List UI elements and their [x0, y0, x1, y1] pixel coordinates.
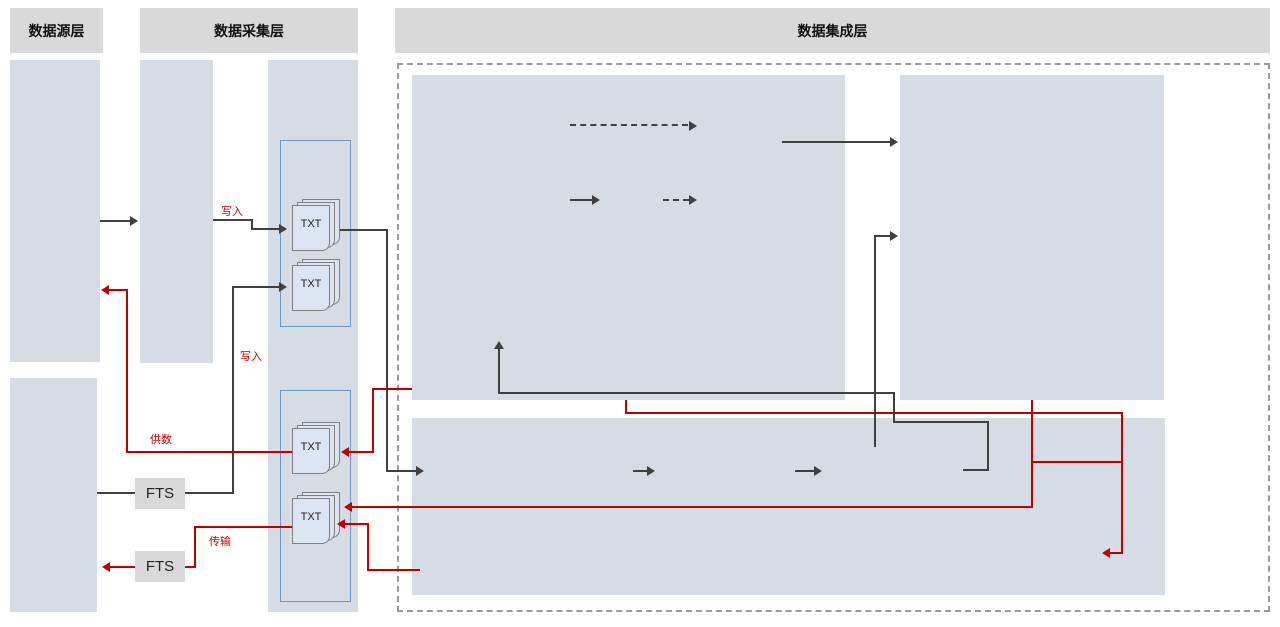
txt-file-stack-receive-2: TXT — [292, 259, 340, 313]
arrow-right-icon — [647, 466, 655, 476]
flow-line-red — [1121, 412, 1123, 554]
flow-line-red — [109, 289, 128, 291]
txt-file-stack-send-2: TXT — [292, 492, 340, 546]
flow-line-red — [348, 451, 374, 453]
flow-line — [251, 228, 280, 230]
arrow-left-icon — [341, 447, 349, 457]
arrow-right-icon — [279, 224, 287, 234]
arrow-right-icon — [416, 466, 424, 476]
flow-line-red — [194, 526, 196, 568]
flow-line-dashed — [570, 124, 688, 126]
flow-line — [232, 286, 280, 288]
flow-line — [499, 392, 895, 394]
flow-line — [100, 220, 132, 222]
arrow-right-icon — [689, 121, 697, 131]
panel-data-marts — [900, 75, 1164, 400]
txt-file-stack-send-1: TXT — [292, 422, 340, 476]
flow-line-red — [373, 388, 412, 390]
arrow-right-icon — [592, 195, 600, 205]
flow-line — [874, 235, 891, 237]
flow-line-red — [1110, 552, 1123, 554]
flow-line — [336, 229, 388, 231]
header-data-integration-layer: 数据集成层 — [395, 8, 1270, 53]
flow-line — [386, 229, 388, 472]
header-data-source-layer: 数据源层 — [10, 8, 103, 53]
flow-line — [498, 348, 500, 394]
flow-line — [795, 470, 815, 472]
arrow-left-icon — [102, 562, 110, 572]
flow-line — [893, 392, 895, 423]
flow-line — [213, 219, 253, 221]
arrow-left-icon — [344, 502, 352, 512]
arrow-right-icon — [890, 231, 898, 241]
flow-label-write-top: 写入 — [221, 203, 243, 219]
flow-line — [874, 235, 876, 447]
panel-unified-collection — [140, 60, 213, 363]
panel-self-built-sources — [10, 60, 100, 362]
flow-line-red — [344, 523, 369, 525]
flow-line-red — [367, 523, 369, 571]
flow-label-supply: 供数 — [150, 431, 172, 447]
flow-line — [893, 421, 989, 423]
flow-line-red — [127, 451, 293, 453]
flow-line-red — [1031, 400, 1033, 508]
flow-line — [633, 470, 648, 472]
arrow-up-icon — [494, 341, 504, 349]
flow-line-red — [126, 290, 128, 453]
flow-line — [782, 141, 891, 143]
arrow-right-icon — [814, 466, 822, 476]
flow-line-red — [625, 412, 1123, 414]
flow-line-dashed — [663, 199, 689, 201]
diagram-canvas: 数据源层 数据采集层 数据集成层 自建数据源 信贷 特色 其他 统建数据源 CB… — [0, 0, 1280, 627]
fts-box-top: FTS — [135, 478, 185, 509]
flow-label-write-mid: 写入 — [240, 348, 262, 364]
arrow-right-icon — [130, 216, 138, 226]
flow-line — [232, 287, 234, 494]
arrow-left-icon — [1102, 548, 1110, 558]
arrow-right-icon — [890, 137, 898, 147]
fts-box-bottom: FTS — [135, 551, 185, 582]
flow-line — [185, 492, 234, 494]
panel-unified-sources — [10, 378, 97, 612]
flow-line — [386, 470, 417, 472]
arrow-left-icon — [101, 285, 109, 295]
arrow-right-icon — [689, 195, 697, 205]
flow-line — [97, 492, 135, 494]
flow-label-transfer: 传输 — [209, 533, 231, 549]
flow-line — [987, 421, 989, 471]
flow-line-red — [195, 526, 293, 528]
txt-file-stack-receive-1: TXT — [292, 199, 340, 253]
arrow-left-icon — [337, 519, 345, 529]
flow-line-red — [1031, 461, 1123, 463]
arrow-right-icon — [279, 282, 287, 292]
flow-line — [570, 199, 593, 201]
header-data-collection-layer: 数据采集层 — [140, 8, 358, 53]
flow-line-red — [351, 506, 1033, 508]
flow-line — [963, 469, 989, 471]
flow-line-red — [368, 569, 420, 571]
flow-line-red — [372, 388, 374, 453]
